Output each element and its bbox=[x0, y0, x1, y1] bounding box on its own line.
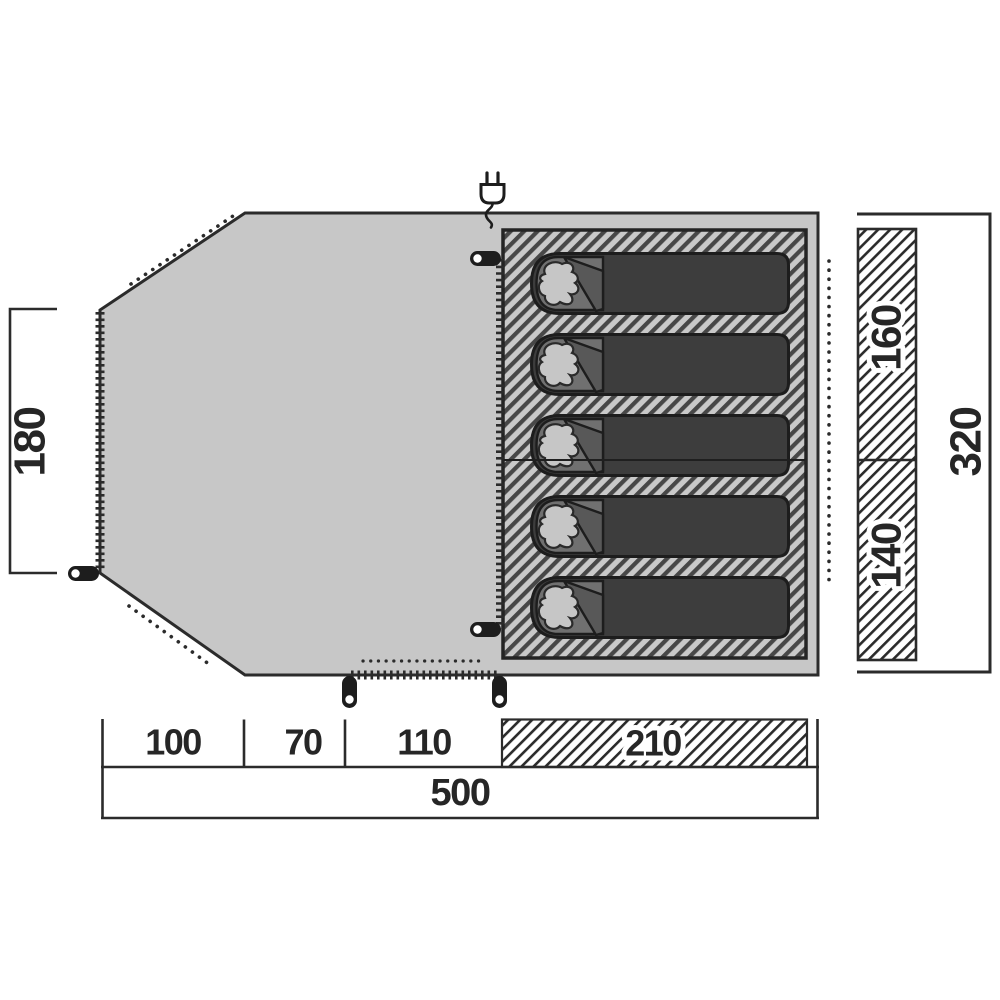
dim-bar-inner-heights bbox=[858, 229, 916, 660]
sleeping-bag-icon bbox=[532, 254, 789, 314]
dim-label-210: 210 bbox=[625, 723, 681, 764]
tent-peg-icon bbox=[342, 676, 357, 708]
dim-label-70: 70 bbox=[284, 722, 322, 763]
dim-label-140: 140 bbox=[863, 523, 910, 589]
tent-peg-icon bbox=[470, 622, 501, 637]
dim-label-110: 110 bbox=[397, 722, 451, 763]
sleeping-bag-icon bbox=[532, 335, 789, 395]
sleeping-bag-icon bbox=[532, 416, 789, 476]
dim-label-100: 100 bbox=[145, 722, 201, 763]
bottom-dimension-scale: 100 70 110 210 500 bbox=[101, 719, 819, 818]
tent-peg-icon bbox=[492, 676, 507, 708]
tent-floorplan-canvas: 180 160 140 320 100 70 110 210 500 bbox=[0, 0, 1000, 1000]
tent-peg-icon bbox=[68, 566, 99, 581]
dim-label-180: 180 bbox=[6, 408, 55, 477]
tent-floorplan-drawing: 180 160 140 320 100 70 110 210 500 bbox=[0, 0, 1000, 1000]
dim-label-320: 320 bbox=[942, 408, 991, 477]
sleeping-bag-icon bbox=[532, 578, 789, 638]
dim-label-500: 500 bbox=[431, 772, 490, 814]
sleeping-bag-icon bbox=[532, 497, 789, 557]
tent-peg-icon bbox=[470, 251, 501, 266]
dim-label-160: 160 bbox=[863, 305, 910, 371]
